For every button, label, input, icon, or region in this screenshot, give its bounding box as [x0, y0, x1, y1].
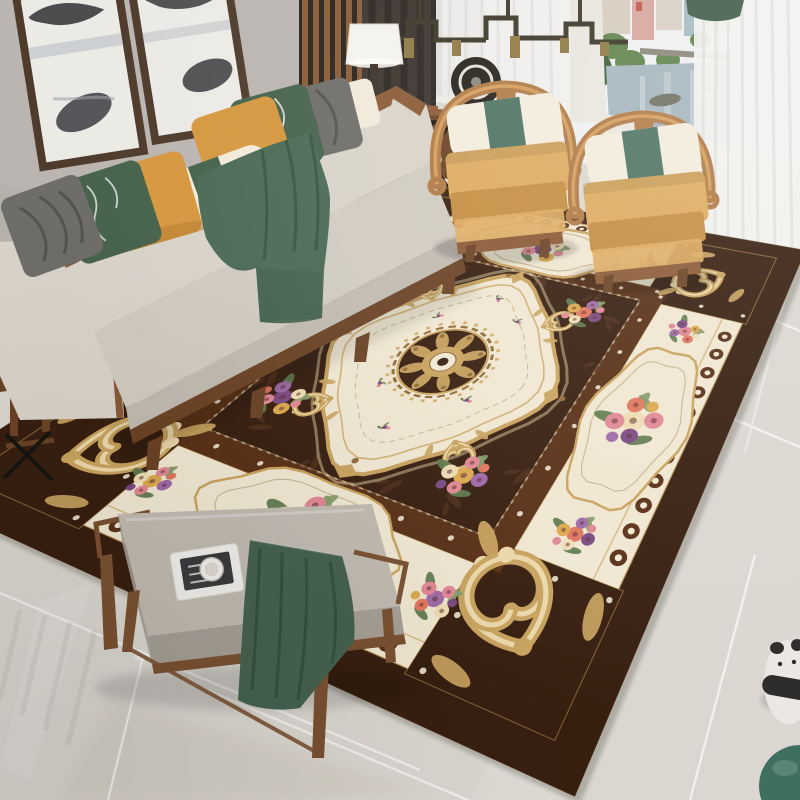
living-room-rug-photo — [0, 0, 800, 800]
vignette-overlay — [0, 0, 800, 800]
